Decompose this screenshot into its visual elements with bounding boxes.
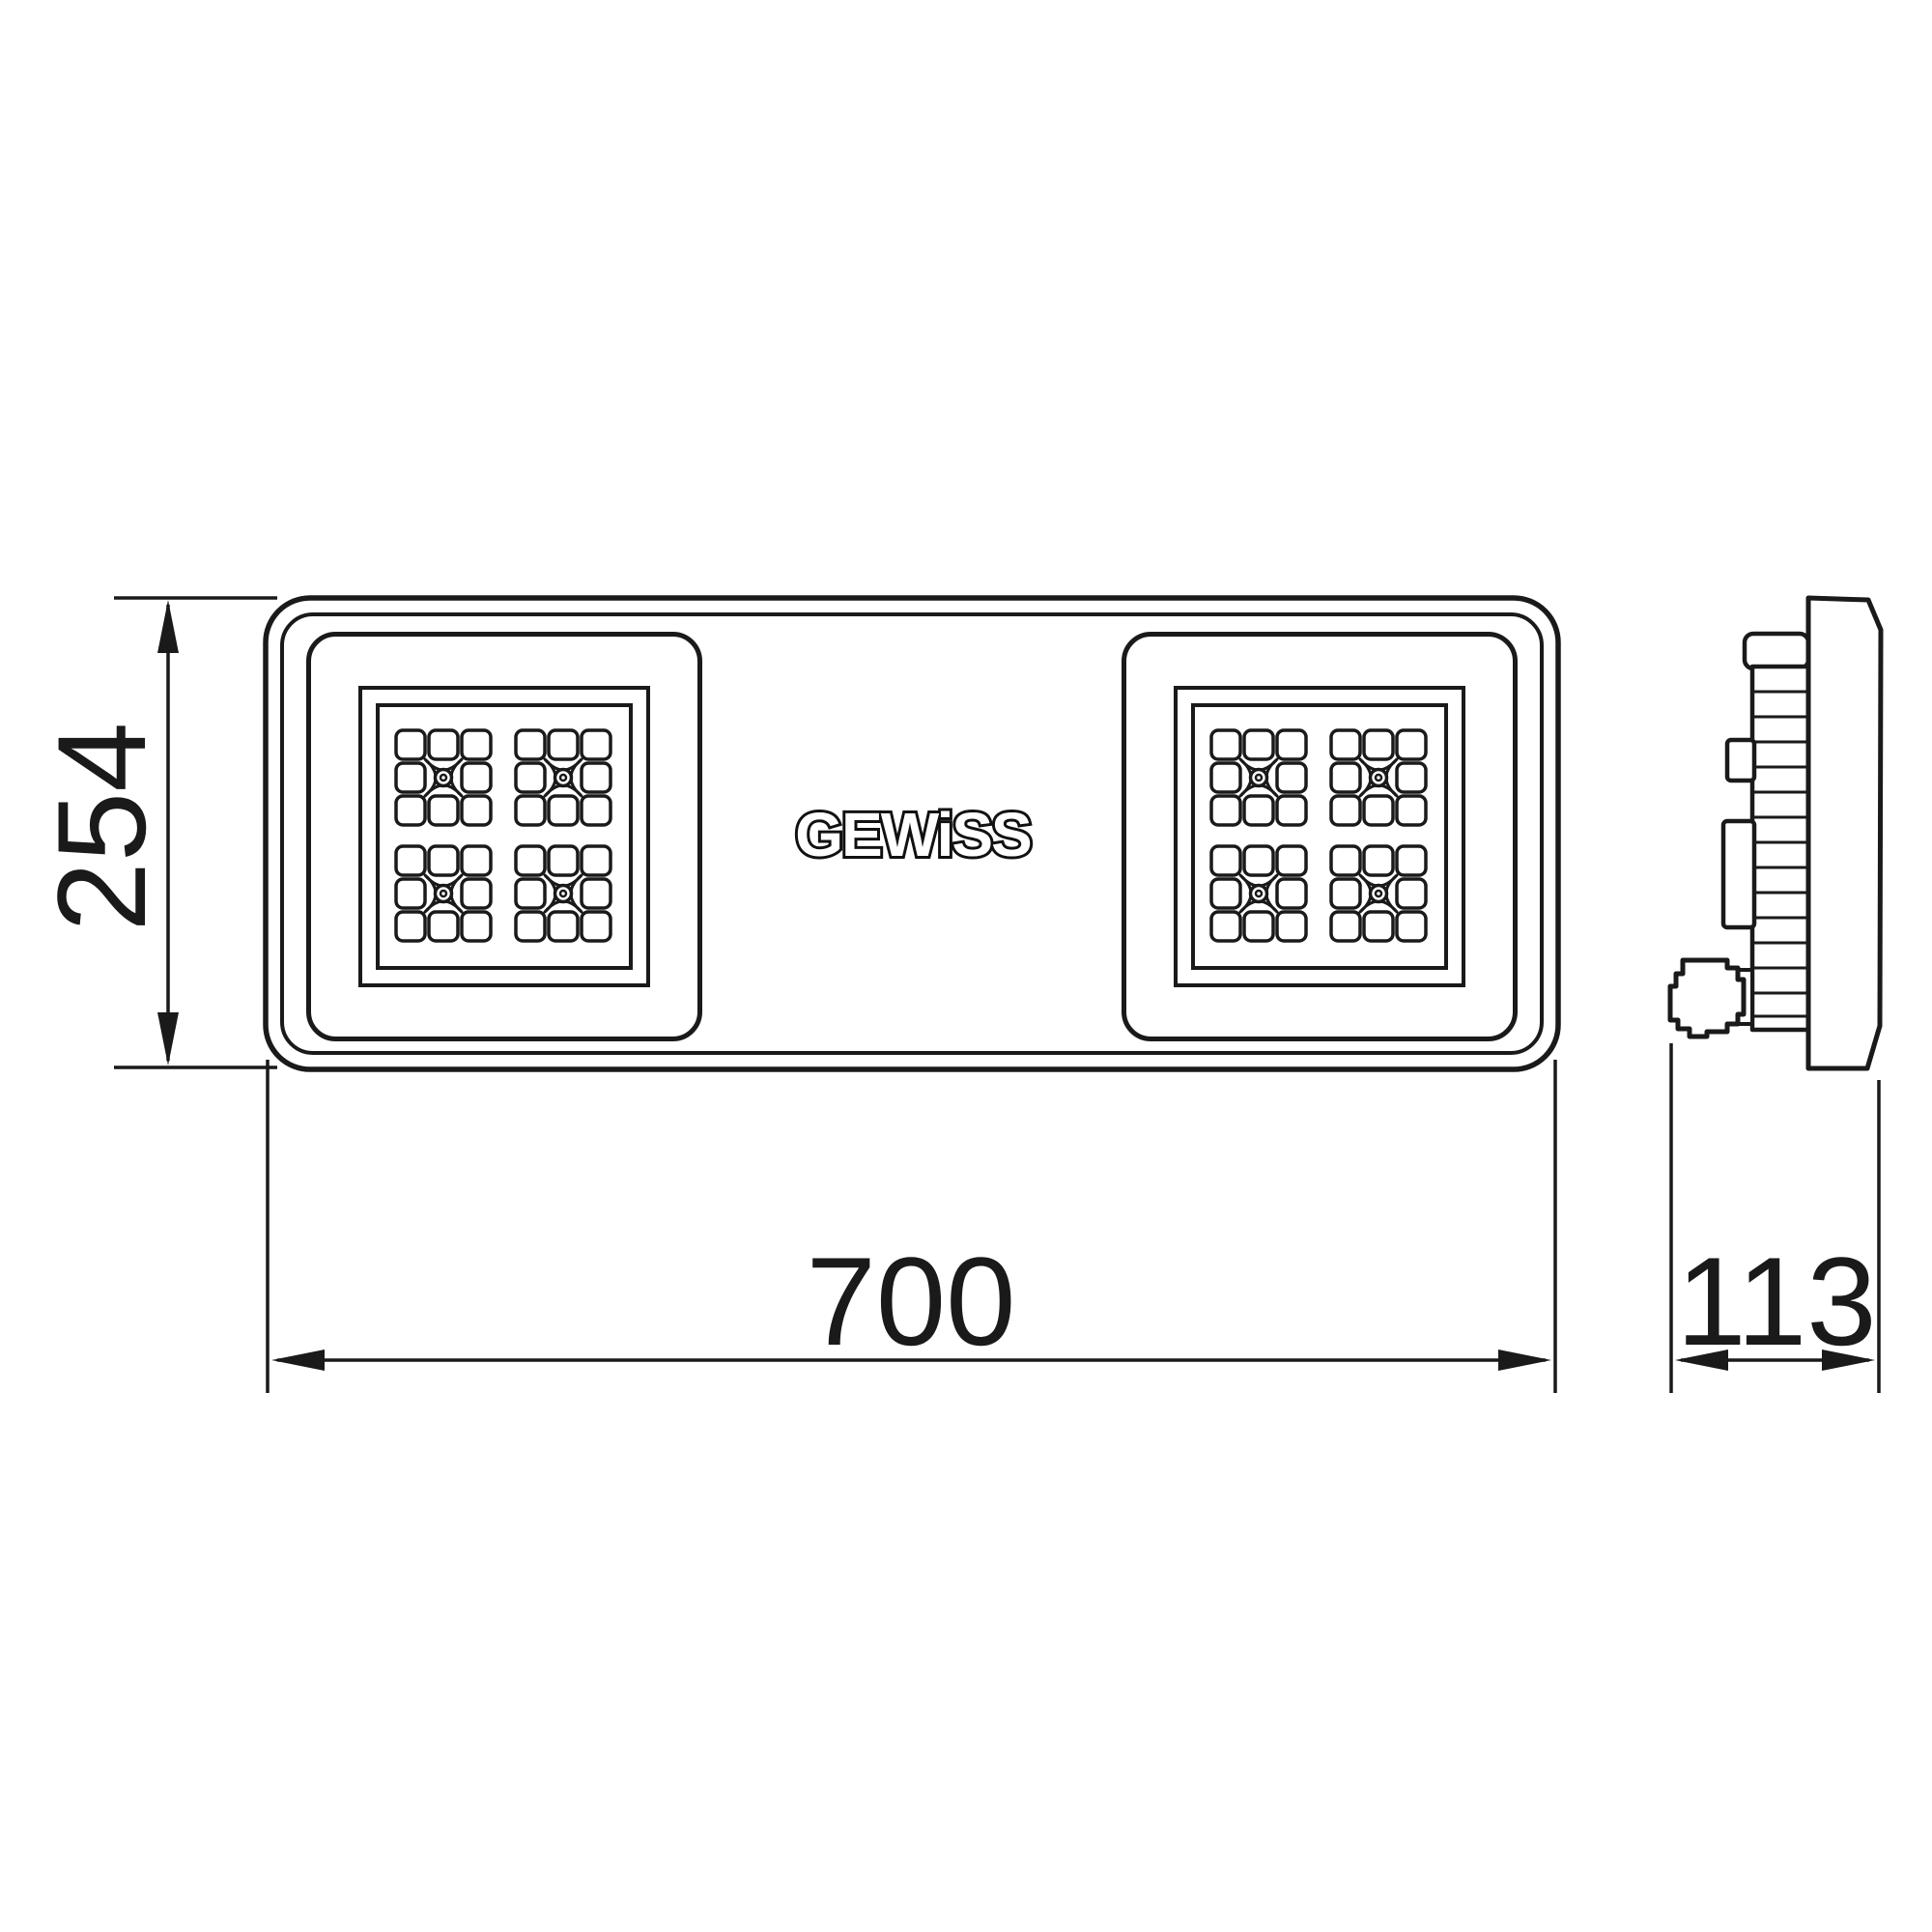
heatsink-body xyxy=(1752,667,1808,1030)
mounting-boss xyxy=(1723,821,1754,927)
floodlight-dimension-drawing: GEWiSS 254 700 113 xyxy=(0,0,1932,1932)
depth-dimension: 113 xyxy=(1671,1043,1879,1393)
cable-gland xyxy=(1670,960,1744,1037)
front-view: GEWiSS xyxy=(266,598,1558,1069)
width-dimension: 700 xyxy=(268,1060,1555,1393)
front-slab xyxy=(1808,598,1881,1068)
led-module-left xyxy=(309,635,700,1039)
mounting-tab xyxy=(1727,740,1754,781)
depth-dimension-label: 113 xyxy=(1676,1231,1876,1372)
arrowhead-up xyxy=(157,600,179,653)
gewiss-logo: GEWiSS xyxy=(795,800,1031,869)
side-view xyxy=(1670,598,1881,1068)
arrowhead-down xyxy=(157,1012,179,1065)
arrowhead-left xyxy=(271,1350,325,1371)
heatsink-top-cap xyxy=(1745,634,1808,668)
led-module-right xyxy=(1124,635,1516,1039)
arrowhead-right xyxy=(1498,1350,1551,1371)
width-dimension-label: 700 xyxy=(807,1231,1016,1372)
technical-drawing-page: GEWiSS 254 700 113 xyxy=(0,0,1932,1932)
height-dimension-label: 254 xyxy=(31,723,172,932)
height-dimension: 254 xyxy=(31,598,277,1067)
